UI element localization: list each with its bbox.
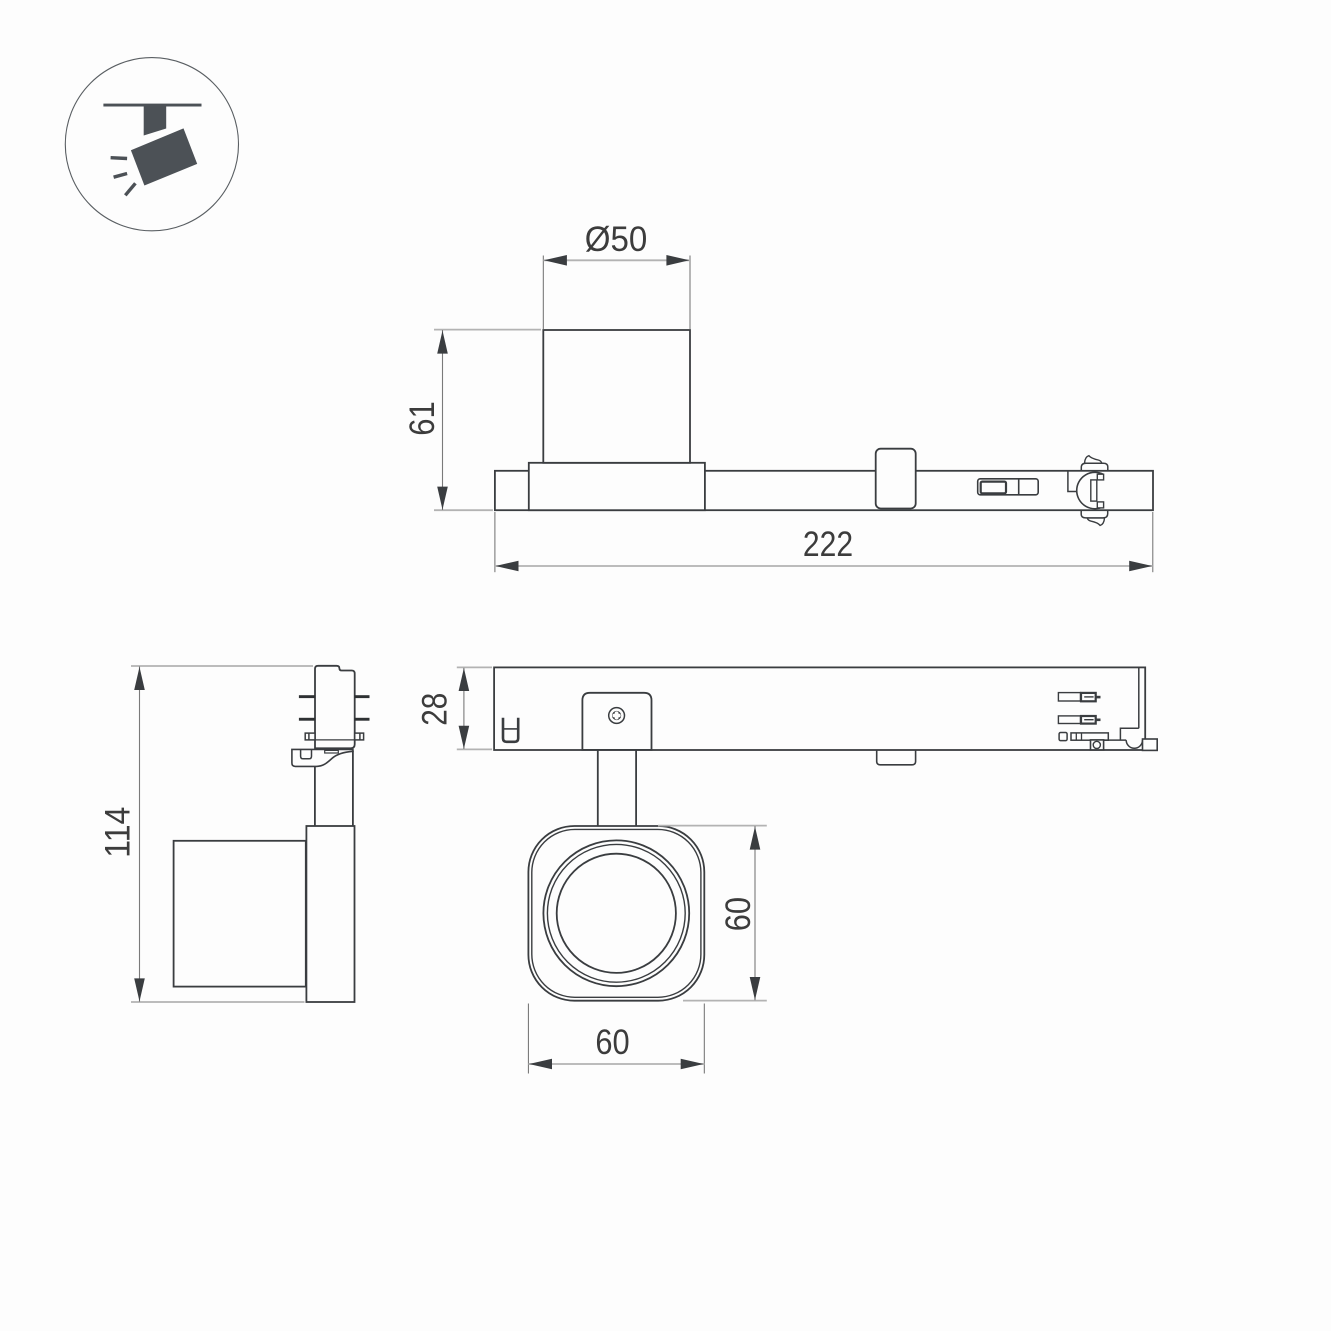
svg-text:114: 114 [99, 807, 138, 858]
svg-text:61: 61 [403, 401, 442, 436]
svg-text:28: 28 [416, 693, 455, 726]
svg-text:Ø50: Ø50 [585, 220, 648, 259]
svg-text:60: 60 [719, 897, 758, 931]
svg-text:60: 60 [595, 1023, 629, 1062]
svg-text:222: 222 [803, 525, 853, 564]
